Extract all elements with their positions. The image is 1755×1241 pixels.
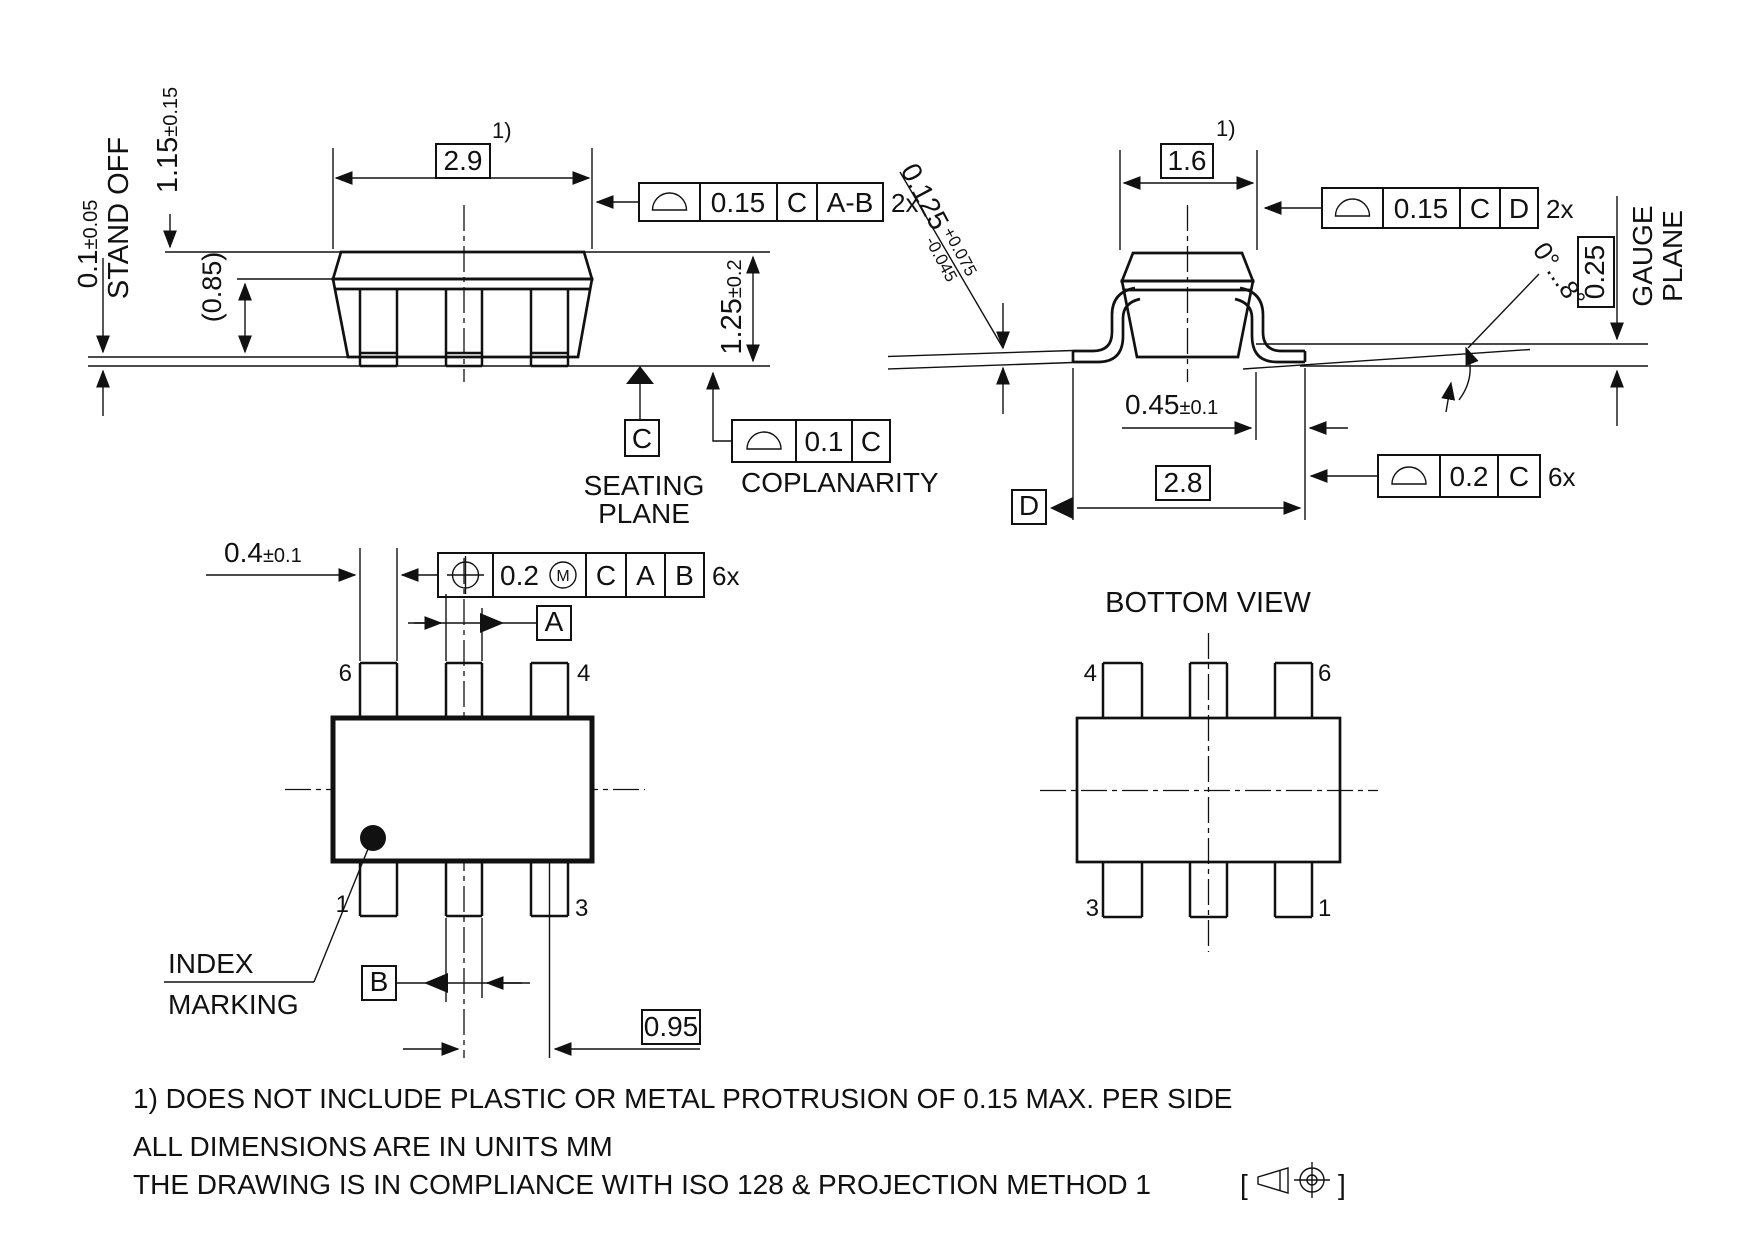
dimension-lead-width-top: 0.4±0.1: [206, 537, 438, 575]
dimension-height: 1.15±0.15: [152, 87, 184, 247]
bottom-view-title: BOTTOM VIEW: [1105, 587, 1311, 619]
dim-085-text: (0.85): [197, 252, 227, 323]
reference-lines: [88, 148, 770, 366]
dim-standoff-text: 0.1±0.05: [72, 200, 103, 289]
coplanarity-label: COPLANARITY: [741, 467, 939, 498]
seating-plane-label: PLANE: [598, 498, 690, 529]
angle-dimension: 0°...8°: [1446, 237, 1592, 412]
fcf-lead-profile: 0.2 C 6x: [1311, 455, 1575, 497]
note-ref: 1): [1216, 116, 1236, 141]
lead: [360, 289, 397, 366]
lead: [1275, 663, 1312, 718]
pin-label: 3: [1086, 895, 1099, 922]
gauge-plane-label: GAUGE: [1627, 205, 1658, 306]
package-body-top: [333, 663, 592, 916]
package-outline-drawing: 2.9 1) 0.15 C A-B 2x 0.1±0.05 STAND OFF …: [0, 0, 1755, 1241]
bracket-close: ]: [1338, 1169, 1346, 1200]
fcf-datum: D: [1509, 193, 1529, 224]
note-line-3: THE DRAWING IS IN COMPLIANCE WITH ISO 12…: [133, 1169, 1151, 1200]
index-marking-dot: [360, 825, 386, 851]
first-angle-projection-icon: [1258, 1162, 1330, 1198]
side-view: 2.9 1) 0.15 C A-B 2x 0.1±0.05 STAND OFF …: [72, 87, 939, 529]
datum-a-label: A: [545, 606, 564, 637]
datum-d-label: D: [1019, 490, 1039, 521]
fcf-datum: B: [675, 560, 694, 591]
fcf-profile-top: 0.15 C A-B 2x: [597, 183, 918, 221]
fcf-tolerance: 0.15: [1394, 193, 1449, 224]
fcf-coplanarity: 0.1 C COPLANARITY: [713, 373, 939, 498]
fcf-datum: C: [596, 560, 616, 591]
fcf-datum: A-B: [827, 187, 874, 218]
pin-label: 4: [1084, 660, 1097, 687]
dim-045-text: 0.45±0.1: [1125, 389, 1218, 420]
dim-2-9: 2.9: [444, 145, 483, 176]
profile-surface-icon: [1392, 467, 1426, 484]
profile-surface-icon: [1336, 199, 1370, 216]
fcf-datum: C: [1509, 461, 1529, 492]
gauge-plane-dimension: 0.25 GAUGE PLANE: [1578, 196, 1688, 426]
fcf-datum: C: [1470, 193, 1490, 224]
dim-025-text: 0.25: [1579, 245, 1610, 300]
gauge-plane-label: PLANE: [1657, 210, 1688, 302]
lead: [1103, 862, 1142, 917]
position-icon: [447, 556, 484, 594]
dimension-standoff: 0.1±0.05 STAND OFF: [72, 137, 135, 416]
end-view: 1.6 1) 0.125 +0.075 -0.045 0.15 C D 2x 0…: [887, 116, 1688, 524]
dimension-lead-span: D 2.8: [1012, 466, 1300, 524]
drawing-svg: 2.9 1) 0.15 C A-B 2x 0.1±0.05 STAND OFF …: [0, 0, 1755, 1241]
dimension-body-thickness: (0.85): [197, 252, 245, 352]
mmc-modifier-label: M: [556, 568, 569, 585]
reference-lines: [888, 150, 1648, 520]
fcf-datum: A: [636, 560, 655, 591]
profile-surface-icon: [747, 432, 781, 449]
pin-label: 4: [577, 660, 590, 687]
note-ref: 1): [492, 118, 512, 143]
dimension-body-width-end: 1.6 1): [1124, 116, 1253, 183]
index-marking-label: INDEX: [168, 948, 254, 979]
dim-height-text: 1.15±0.15: [152, 87, 184, 193]
package-body-end: [1073, 205, 1305, 382]
fcf-datum: C: [861, 426, 881, 457]
fcf-profile-top-end: 0.15 C D 2x: [1265, 188, 1573, 228]
fcf-tolerance: 0.1: [805, 426, 844, 457]
dim-125-text: 1.25±0.2: [716, 259, 748, 354]
index-marking-callout: INDEX MARKING: [164, 844, 370, 1020]
lead: [1103, 663, 1142, 718]
fcf-count: 2x: [1546, 194, 1573, 224]
dimension-lead-width: 0.45±0.1: [1122, 389, 1348, 428]
fcf-datum: C: [787, 187, 807, 218]
pin-label: 1: [1318, 895, 1331, 922]
top-view: 6 4 1 3 0.4±0.1 0.2 M C A B 6x A: [164, 537, 739, 1058]
seating-plane-label: SEATING: [584, 470, 705, 501]
dim-2-8: 2.8: [1164, 467, 1203, 498]
package-body-side: [333, 205, 592, 382]
datum-d-arrow: [1050, 497, 1073, 519]
dimension-pitch: 0.95: [403, 1010, 700, 1049]
lead: [531, 289, 568, 366]
lead: [360, 663, 397, 718]
datum-c-symbol: C SEATING PLANE: [584, 366, 705, 529]
pin-label: 3: [575, 895, 588, 922]
notes: 1) DOES NOT INCLUDE PLASTIC OR METAL PRO…: [133, 1083, 1346, 1200]
dimension-total-height: 1.25±0.2: [716, 257, 753, 361]
pin-label: 6: [339, 660, 352, 687]
pin-label: 6: [1318, 660, 1331, 687]
lead: [1275, 862, 1312, 917]
fcf-tolerance: 0.2: [1450, 461, 1489, 492]
fcf-tolerance: 0.15: [711, 187, 766, 218]
fcf-tolerance: 0.2: [500, 560, 539, 591]
note-line-2: ALL DIMENSIONS ARE IN UNITS MM: [133, 1131, 613, 1162]
dim-095: 0.95: [644, 1011, 699, 1042]
fcf-count: 6x: [1548, 462, 1575, 492]
datum-b-label: B: [370, 966, 389, 997]
datum-c-label: C: [632, 423, 652, 454]
dim-04-text: 0.4±0.1: [224, 537, 302, 568]
fcf-position: 0.2 M C A B 6x: [438, 553, 739, 597]
note-line-1: 1) DOES NOT INCLUDE PLASTIC OR METAL PRO…: [133, 1083, 1232, 1114]
lead: [531, 663, 568, 718]
standoff-label: STAND OFF: [103, 137, 135, 299]
bottom-view: BOTTOM VIEW 4 6 3 1: [1040, 587, 1378, 952]
dimension-body-width: 2.9 1): [336, 118, 589, 178]
fcf-count: 6x: [712, 561, 739, 591]
dim-0125-text: 0.125 +0.075 -0.045: [887, 158, 982, 288]
profile-surface-icon: [653, 193, 687, 210]
dim-1-6: 1.6: [1168, 145, 1207, 176]
bracket-open: [: [1240, 1169, 1248, 1200]
datum-a-symbol: A: [408, 606, 571, 640]
lead: [360, 861, 397, 916]
index-marking-label: MARKING: [168, 989, 299, 1020]
